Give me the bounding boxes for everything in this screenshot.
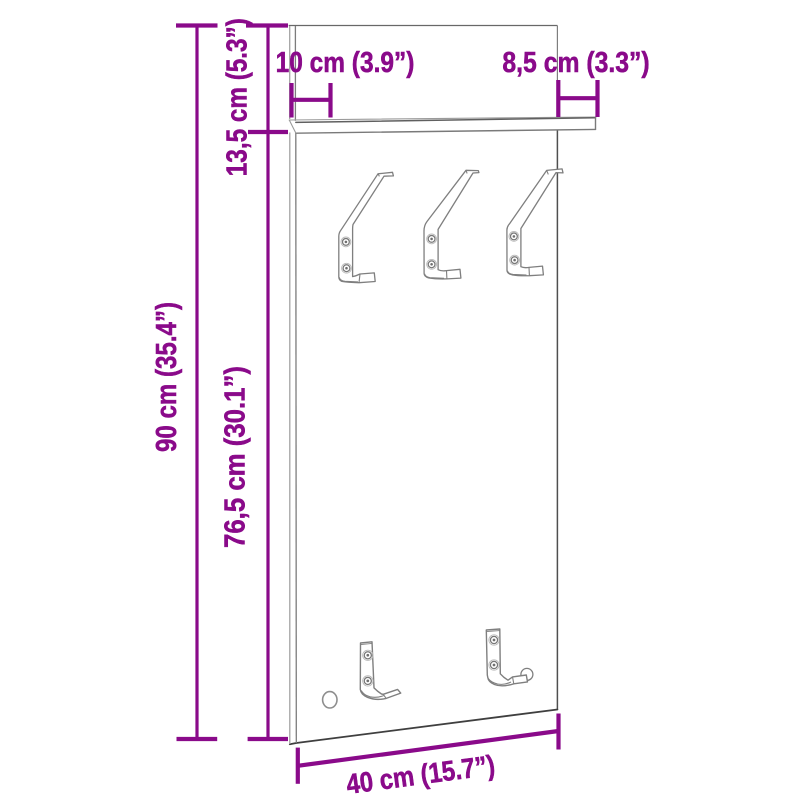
svg-text:13,5 cm (5.3”): 13,5 cm (5.3”) bbox=[221, 18, 253, 176]
svg-text:76,5 cm (30.1”): 76,5 cm (30.1”) bbox=[220, 366, 252, 548]
svg-text:8,5 cm (3.3”): 8,5 cm (3.3”) bbox=[502, 47, 649, 79]
svg-text:10 cm (3.9”): 10 cm (3.9”) bbox=[276, 47, 415, 79]
svg-text:90 cm (35.4”): 90 cm (35.4”) bbox=[151, 302, 183, 452]
